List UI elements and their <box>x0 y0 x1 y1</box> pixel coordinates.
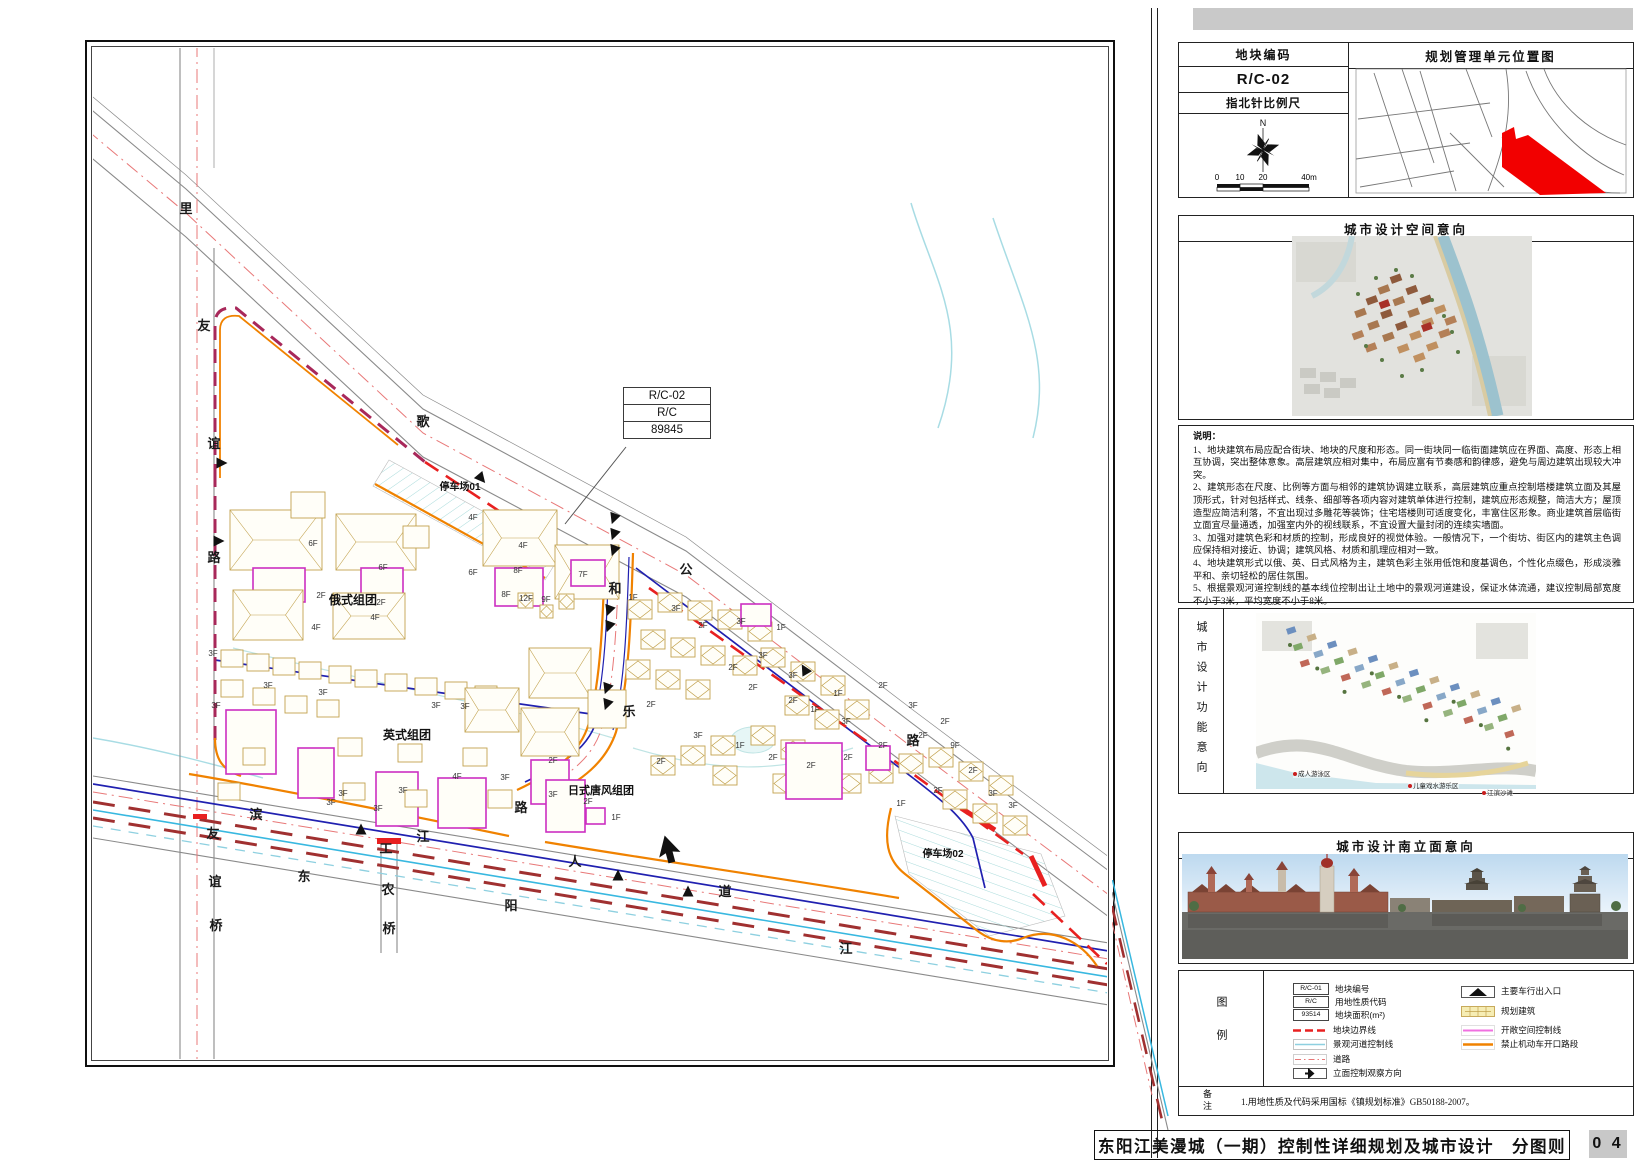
building <box>403 526 429 548</box>
function-zone-label: 江滨沙滩 <box>1482 790 1513 797</box>
legend-item-open-space: 开敞空间控制线 <box>1461 1024 1561 1036</box>
floor-label: 6F <box>308 539 317 548</box>
legend-item-no-curb-cut: 禁止机动车开口路段 <box>1461 1038 1578 1050</box>
red-dot-icon <box>1293 772 1297 776</box>
floor-label: 2F <box>768 753 777 762</box>
svg-text:10: 10 <box>1236 173 1245 182</box>
building <box>247 654 269 671</box>
floor-label: 3F <box>988 789 997 798</box>
building <box>317 700 339 717</box>
remark-title: 备注 <box>1203 1088 1212 1112</box>
note-item: 1、地块建筑布局应配合街块、地块的尺度和形态。同一街块同一临街面建筑应在界面、高… <box>1193 445 1621 483</box>
canal-swatch <box>1293 1039 1327 1050</box>
building <box>751 726 775 745</box>
building <box>540 605 553 618</box>
building <box>463 748 487 766</box>
area-label: 日式唐风组团 <box>568 783 634 797</box>
floor-label: 2F <box>806 761 815 770</box>
svg-text:20: 20 <box>1259 173 1268 182</box>
road-name-char: 路 <box>514 800 528 815</box>
road-name-char: 桥 <box>209 918 223 933</box>
floor-label: 2F <box>878 741 887 750</box>
elevation-image <box>1182 854 1628 959</box>
key-building <box>298 748 334 798</box>
floor-label: 3F <box>373 804 382 813</box>
north-arrow-and-scale: N <box>1179 114 1348 198</box>
floor-label: 2F <box>728 663 737 672</box>
floor-label: 3F <box>326 798 335 807</box>
floor-label: 7F <box>578 570 587 579</box>
open-space-swatch <box>1461 1025 1495 1036</box>
legend-item-view-direction: 立面控制观察方向 <box>1293 1067 1402 1079</box>
floor-label: 4F <box>518 541 527 550</box>
legend-item-landuse-code: R/C 用地性质代码 <box>1293 996 1387 1008</box>
floor-label: 2F <box>940 717 949 726</box>
building <box>415 678 437 695</box>
legend-title-cell: 图例 <box>1179 971 1264 1086</box>
remark-text: 1.用地性质及代码采用国标《镇规划标准》GB50188-2007。 <box>1241 1095 1475 1108</box>
building <box>291 492 325 518</box>
floor-label: 3F <box>208 649 217 658</box>
building <box>929 748 953 767</box>
floor-label: 2F <box>583 797 592 806</box>
function-zone-label: 儿童戏水游乐区 <box>1408 783 1459 790</box>
floor-label: 4F <box>370 613 379 622</box>
area-label: 英式组团 <box>383 727 431 742</box>
road-name-char: 歌 <box>416 414 430 429</box>
svg-text:40m: 40m <box>1301 173 1317 182</box>
compass-scale-label: 指北针比例尺 <box>1179 93 1348 114</box>
plot-callout: R/C-02 R/C 89845 <box>623 387 711 439</box>
road-name-char: 江 <box>416 829 429 844</box>
building <box>1003 816 1027 835</box>
building <box>483 510 557 566</box>
building <box>465 688 519 732</box>
road-swatch <box>1293 1054 1327 1065</box>
legend-box-landuse: R/C <box>1293 996 1329 1008</box>
function-intent-panel: 城市设计功能意向 <box>1178 608 1634 794</box>
buildings-layer <box>218 492 1027 835</box>
floor-label: 8F <box>501 590 510 599</box>
building <box>671 638 695 657</box>
floor-label: 1F <box>776 623 785 632</box>
building <box>338 738 362 756</box>
key-building <box>571 560 605 586</box>
floor-label: 3F <box>548 790 557 799</box>
floor-label: 3F <box>431 701 440 710</box>
legend-item-vehicle-entry: 主要车行出入口 <box>1461 985 1561 997</box>
building <box>686 680 710 699</box>
road-name-char: 桥 <box>382 921 396 936</box>
building <box>385 674 407 691</box>
building <box>243 748 265 765</box>
floor-label: 6F <box>468 568 477 577</box>
legend-item-boundary: 地块边界线 <box>1293 1024 1376 1036</box>
road-name-char: 东 <box>297 869 310 884</box>
red-dash-swatch <box>1293 1025 1327 1036</box>
legend-title: 图例 <box>1213 996 1229 1062</box>
legend-box-code: R/C-01 <box>1293 983 1329 995</box>
floor-label: 3F <box>788 671 797 680</box>
note-item: 3、加强对建筑色彩和材质的控制，形成良好的视觉体验。一般情况下，一个街坊、街区内… <box>1193 533 1621 558</box>
floor-label: 3F <box>758 651 767 660</box>
building <box>405 790 427 807</box>
elevation-panel: 城市设计南立面意向 <box>1178 832 1634 964</box>
floor-label: 1F <box>611 813 620 822</box>
red-dot-icon <box>1408 784 1412 788</box>
building <box>701 646 725 665</box>
building <box>253 688 275 705</box>
floor-label: 2F <box>933 786 942 795</box>
remark-panel: 备注 1.用地性质及代码采用国标《镇规划标准》GB50188-2007。 <box>1178 1086 1634 1116</box>
key-building <box>786 743 842 799</box>
plot-code: R/C-02 <box>624 388 710 405</box>
area-label: 停车场02 <box>922 847 964 860</box>
floor-label: 3F <box>398 786 407 795</box>
no-curb-cut-swatch <box>1461 1039 1495 1050</box>
building <box>713 766 737 785</box>
entrance-marker <box>602 620 616 634</box>
landuse-code: R/C <box>624 405 710 422</box>
road-name-char: 公 <box>679 562 692 577</box>
area-label: 俄式组团 <box>328 592 377 607</box>
location-map <box>1354 67 1628 195</box>
building <box>641 630 665 649</box>
legend-panel: 图例 R/C-01 地块编号 R/C 用地性质代码 93514 地块面积(m²)… <box>1178 970 1634 1087</box>
sheet-number: 0 4 <box>1589 1130 1627 1158</box>
building <box>329 666 351 683</box>
notes-panel: 说明： 1、地块建筑布局应配合街块、地块的尺度和形态。同一街块同一临街面建筑应在… <box>1178 425 1634 603</box>
building <box>688 601 712 620</box>
entrance-marker <box>607 528 621 542</box>
note-item: 4、地块建筑形式以俄、英、日式风格为主，建筑色彩主张用低饱和度基调色，个性化点缀… <box>1193 558 1621 583</box>
road-name-char: 里 <box>179 201 192 216</box>
sheet-title: 东阳江美漫城（一期）控制性详细规划及城市设计 分图则 <box>1094 1130 1570 1160</box>
floor-label: 1F <box>628 593 637 602</box>
building <box>681 746 705 765</box>
floor-label: 1F <box>896 799 905 808</box>
building <box>656 670 680 689</box>
legend-item-plot-code: R/C-01 地块编号 <box>1293 983 1369 995</box>
floor-label: 3F <box>211 701 220 710</box>
building-swatch <box>1461 1006 1495 1017</box>
building <box>355 670 377 687</box>
building <box>299 662 321 679</box>
floor-label: 4F <box>468 513 477 522</box>
floor-label: 9F <box>950 741 959 750</box>
floor-label: 3F <box>736 617 745 626</box>
floor-label: 2F <box>656 757 665 766</box>
entrance-marker <box>217 458 228 469</box>
plot-code-value: R/C-02 <box>1179 67 1348 93</box>
road-name-char: 江 <box>839 941 852 956</box>
building <box>899 754 923 773</box>
space-intent-panel: 城市设计空间意向 <box>1178 215 1634 420</box>
floor-label: 3F <box>263 681 272 690</box>
building <box>233 590 303 640</box>
building <box>626 660 650 679</box>
building <box>221 650 243 667</box>
building <box>711 736 735 755</box>
legend-item-canal: 景观河道控制线 <box>1293 1038 1393 1050</box>
svg-text:0: 0 <box>1215 173 1220 182</box>
compass-scale-cell: N <box>1179 114 1348 198</box>
legend-item-planned-building: 规划建筑 <box>1461 1005 1535 1017</box>
road-name-char: 友 <box>197 318 210 333</box>
road-name-char: 阳 <box>504 898 517 913</box>
north-letter: N <box>1260 118 1267 128</box>
info-table: 地块编码 R/C-02 指北针比例尺 N <box>1178 42 1634 198</box>
floor-label: 2F <box>788 696 797 705</box>
road-name-char: 滨 <box>249 807 262 822</box>
building <box>221 680 243 697</box>
floor-label: 3F <box>841 717 850 726</box>
plot-area-value: 89845 <box>624 422 710 438</box>
floor-label: 3F <box>318 688 327 697</box>
road-name-char: 人 <box>568 854 582 869</box>
road-name-char: 道 <box>718 884 731 899</box>
floor-label: 2F <box>878 681 887 690</box>
building <box>218 783 240 800</box>
site-plan-map: 里友谊路友谊桥歌公路和乐路滨江人道东阳江工农桥6F6F2F2F4F4F4F4F6… <box>85 40 1115 1067</box>
site-plan-drawing: 里友谊路友谊桥歌公路和乐路滨江人道东阳江工农桥6F6F2F2F4F4F4F4F6… <box>93 48 1107 1059</box>
floor-label: 3F <box>1008 801 1017 810</box>
key-building <box>586 808 605 824</box>
floor-label: 1F <box>833 689 842 698</box>
floor-label: 4F <box>311 623 320 632</box>
floor-label: 12F <box>519 594 533 603</box>
floor-label: 2F <box>548 756 557 765</box>
building <box>588 690 626 728</box>
building <box>529 648 591 698</box>
floor-label: 2F <box>968 766 977 775</box>
floor-label: 2F <box>843 753 852 762</box>
road-continuation <box>1112 880 1170 1150</box>
road-name-char: 和 <box>608 581 621 596</box>
key-building <box>438 778 486 828</box>
building <box>559 594 574 609</box>
building <box>488 790 512 808</box>
red-dot-icon <box>1482 791 1486 795</box>
floor-label: 6F <box>378 563 387 572</box>
floor-label: 2F <box>376 598 385 607</box>
note-item: 2、建筑形态在尺度、比例等方面与相邻的建筑协调建立联系，高层建筑应重点控制塔楼建… <box>1193 482 1621 532</box>
road-name-char: 谊 <box>207 436 220 451</box>
plot-code-cell: 地块编码 R/C-02 指北针比例尺 N <box>1179 43 1349 197</box>
building <box>285 696 307 713</box>
road-name-char: 友 <box>206 826 219 841</box>
space-intent-image <box>1292 236 1532 416</box>
function-intent-title: 城市设计功能意向 <box>1193 621 1209 781</box>
floor-label: 2F <box>646 700 655 709</box>
location-map-title: 规划管理单元位置图 <box>1348 43 1633 69</box>
building <box>273 658 295 675</box>
floor-label: 2F <box>748 683 757 692</box>
building <box>628 600 652 619</box>
legend-box-area: 93514 <box>1293 1009 1329 1021</box>
floor-label: 8F <box>513 566 522 575</box>
function-intent-title-cell: 城市设计功能意向 <box>1179 609 1224 793</box>
floor-label: 9F <box>541 595 550 604</box>
legend-item-area: 93514 地块面积(m²) <box>1293 1009 1385 1021</box>
floor-label: 3F <box>460 702 469 711</box>
legend-item-road: 道路 <box>1293 1053 1350 1065</box>
floor-label: 3F <box>908 701 917 710</box>
road-name-char: 农 <box>380 882 394 897</box>
floor-label: 3F <box>500 773 509 782</box>
road-name-char: 路 <box>207 550 221 565</box>
entrance-marker <box>683 886 694 897</box>
plan-sheet: 里友谊路友谊桥歌公路和乐路滨江人道东阳江工农桥6F6F2F2F4F4F4F4F6… <box>0 0 1650 1167</box>
function-zone-label: 成人游泳区 <box>1293 771 1331 778</box>
scale-bar: 0 10 20 40m <box>1215 173 1317 191</box>
plot-code-label: 地块编码 <box>1179 43 1348 67</box>
area-label: 停车场01 <box>439 480 481 493</box>
floor-label: 3F <box>693 731 702 740</box>
note-item: 5、根据景观河道控制线的基本线位控制出让土地中的景观河道建设，保证水体流通，建议… <box>1193 583 1621 608</box>
road-name-char: 乐 <box>622 704 635 719</box>
road-name-char: 工 <box>379 841 392 856</box>
view-arrow-swatch <box>1293 1068 1327 1079</box>
floor-label: 1F <box>810 705 819 714</box>
floor-label: 3F <box>671 604 680 613</box>
building <box>973 804 997 823</box>
floor-label: 1F <box>735 741 744 750</box>
floor-label: 2F <box>698 621 707 630</box>
entry-swatch <box>1461 986 1495 997</box>
building <box>943 790 967 809</box>
floor-label: 2F <box>316 591 325 600</box>
floor-label: 2F <box>918 731 927 740</box>
road-name-char: 谊 <box>208 874 221 889</box>
notes-title: 说明： <box>1193 431 1621 444</box>
building <box>445 682 467 699</box>
header-grey-strip <box>1193 8 1633 30</box>
floor-label: 4F <box>452 772 461 781</box>
building <box>398 744 422 762</box>
building <box>521 708 579 756</box>
function-intent-image <box>1256 613 1536 789</box>
entrance-marker <box>214 536 225 547</box>
floor-label: 3F <box>338 789 347 798</box>
callout-leader-line <box>565 447 626 524</box>
